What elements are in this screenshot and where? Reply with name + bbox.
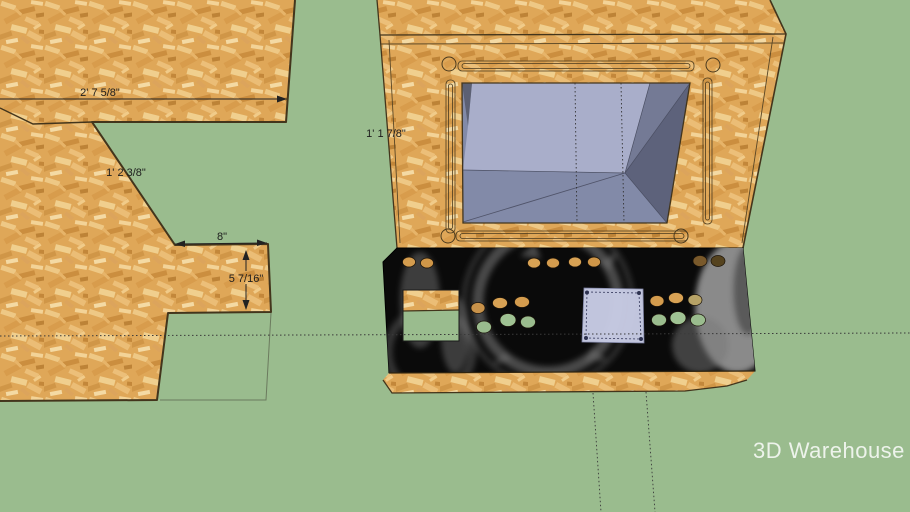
dim-cabinet-height-label: 1' 1 7/8" xyxy=(366,128,406,140)
dim-width-top-label: 2' 7 5/8" xyxy=(80,87,120,99)
dim-step-height-label: 5 7/16" xyxy=(229,273,264,285)
panel-rect-cutout xyxy=(403,290,459,341)
selected-plate[interactable] xyxy=(582,288,644,343)
dim-diagonal: 1' 2 3/8" xyxy=(106,167,146,179)
dim-cabinet-height: 1' 1 7/8" xyxy=(366,128,406,140)
screen-interior xyxy=(462,83,690,223)
sketchup-viewport[interactable]: 2' 7 5/8" 1' 2 3/8" 8" 5 7/16" 1' 1 7/8"… xyxy=(0,0,910,512)
arcade-cabinet[interactable] xyxy=(377,0,786,248)
dim-notch-width-label: 8" xyxy=(217,231,227,243)
cabinet-top-face xyxy=(377,0,786,35)
model-view: 2' 7 5/8" 1' 2 3/8" 8" 5 7/16" 1' 1 7/8" xyxy=(0,0,910,512)
dim-diagonal-label: 1' 2 3/8" xyxy=(106,167,146,179)
